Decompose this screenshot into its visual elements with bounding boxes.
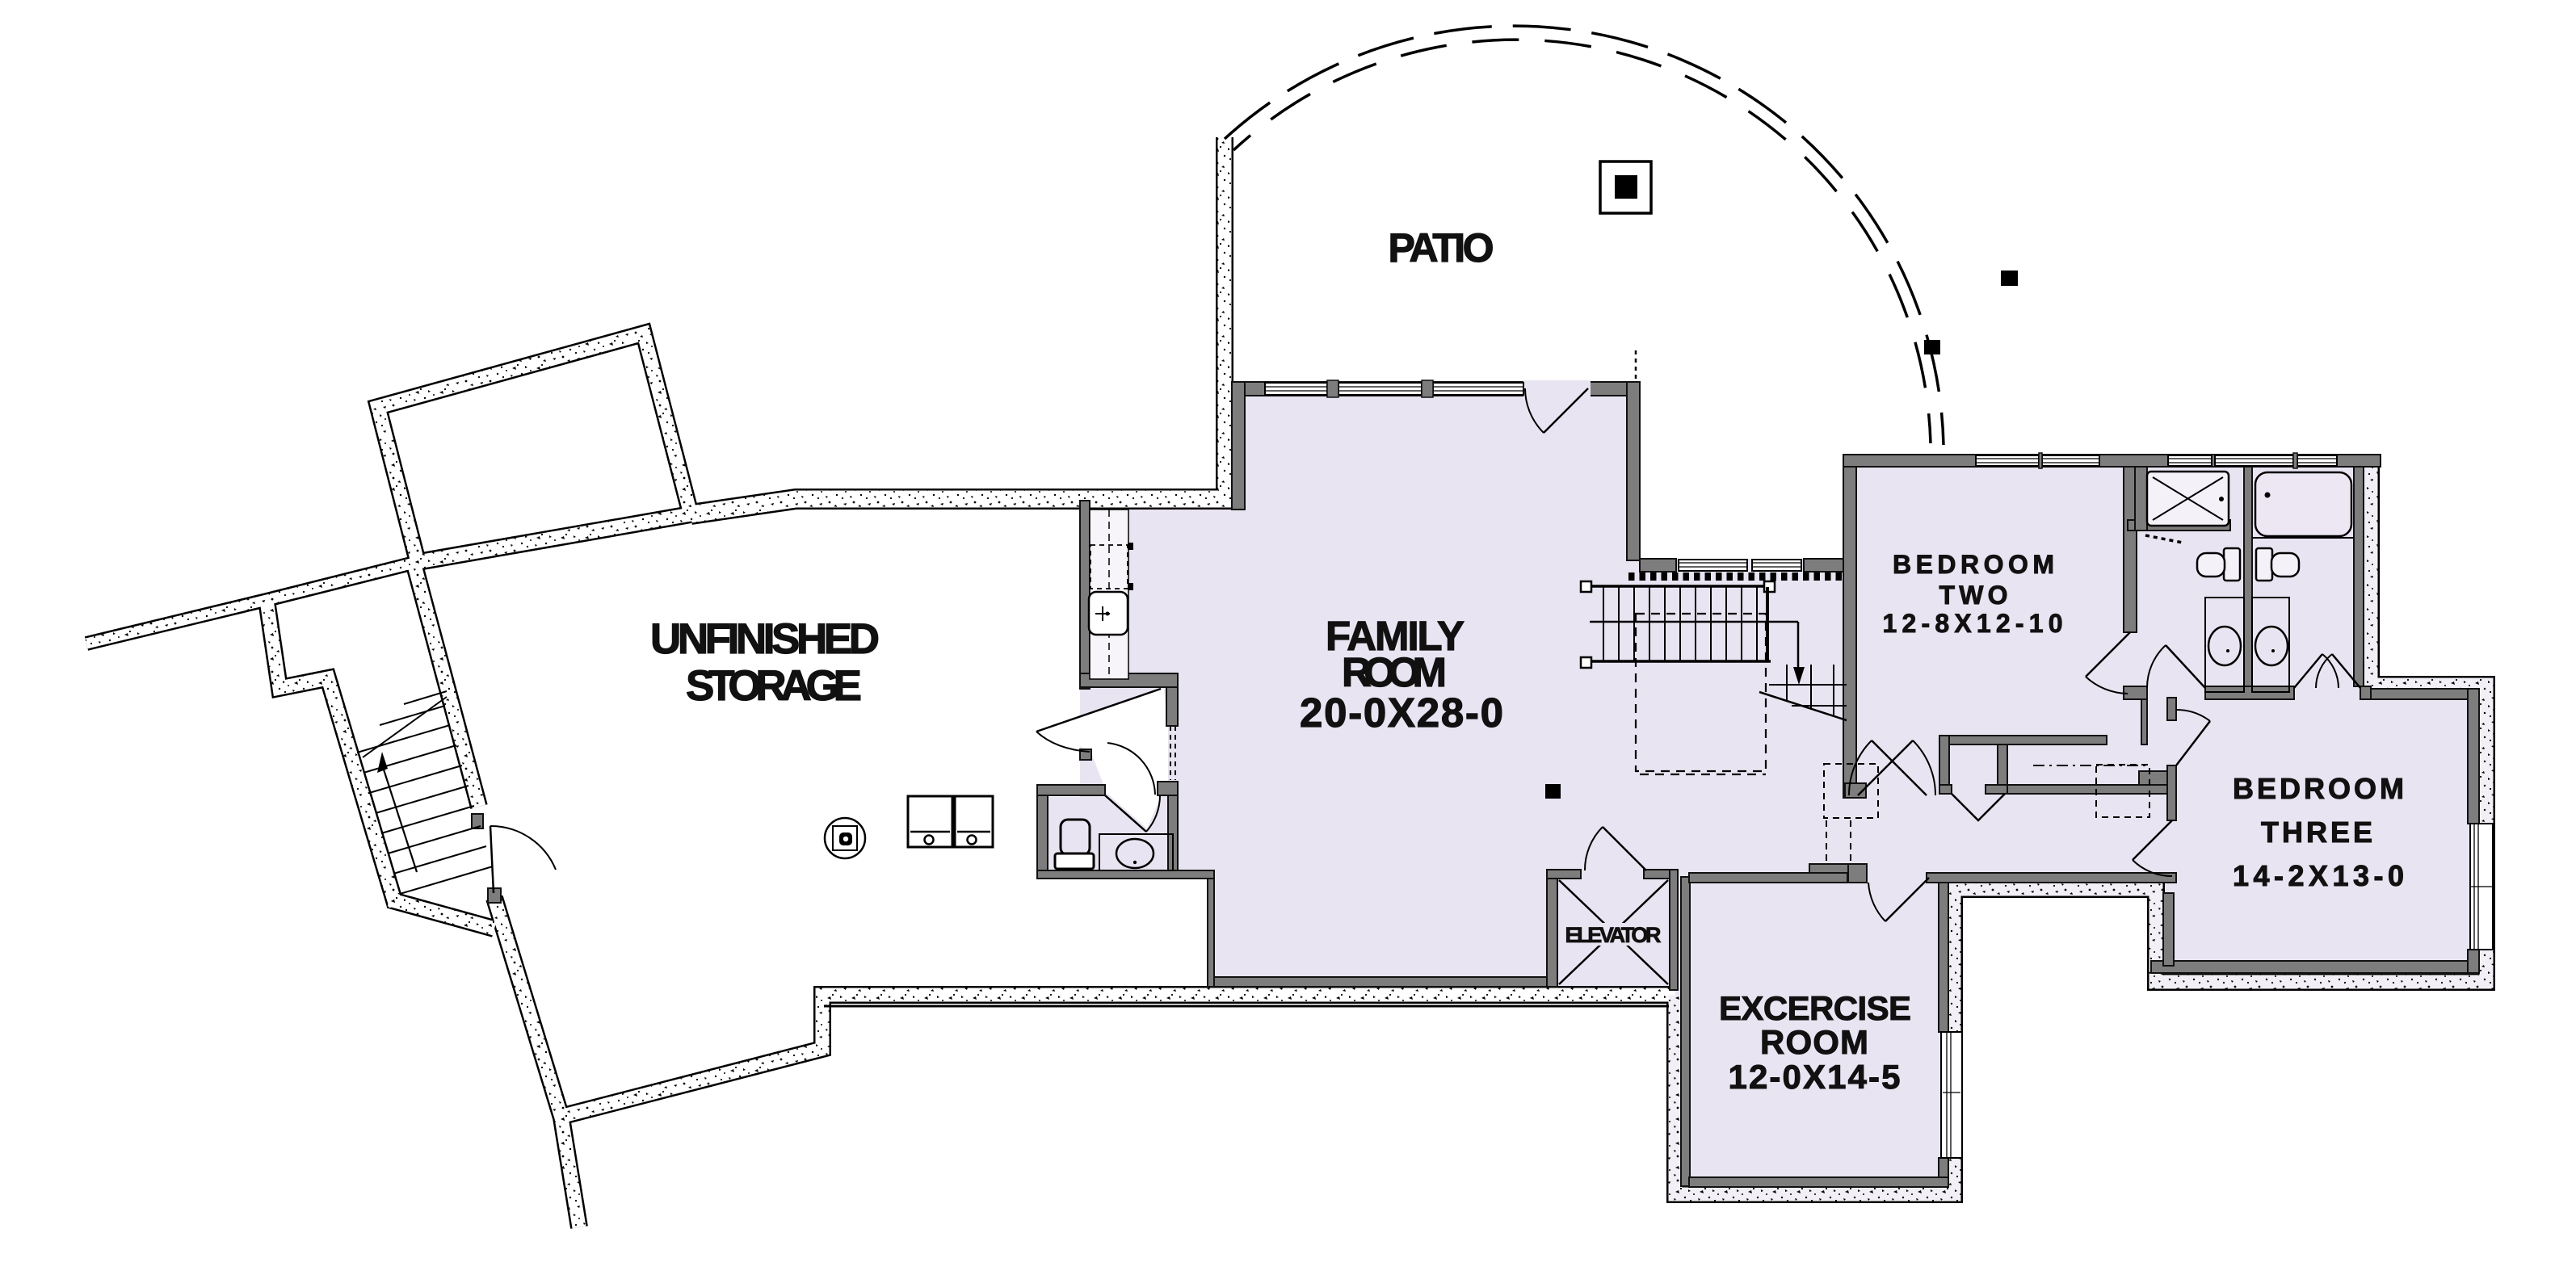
svg-text:THREE: THREE [2261, 816, 2372, 849]
svg-text:12-0X14-5: 12-0X14-5 [1729, 1058, 1901, 1096]
svg-text:ROOM: ROOM [1342, 649, 1447, 695]
svg-text:ELEVATOR: ELEVATOR [1565, 923, 1662, 947]
svg-text:PATIO: PATIO [1389, 225, 1494, 271]
svg-text:20-0X28-0: 20-0X28-0 [1300, 690, 1503, 736]
svg-text:ROOM: ROOM [1760, 1023, 1868, 1061]
svg-text:14-2X13-0: 14-2X13-0 [2233, 859, 2404, 892]
svg-text:UNFINISHED: UNFINISHED [650, 615, 880, 663]
svg-text:TWO: TWO [1939, 581, 2008, 610]
svg-text:EXCERCISE: EXCERCISE [1719, 989, 1911, 1027]
svg-text:STORAGE: STORAGE [686, 662, 862, 710]
